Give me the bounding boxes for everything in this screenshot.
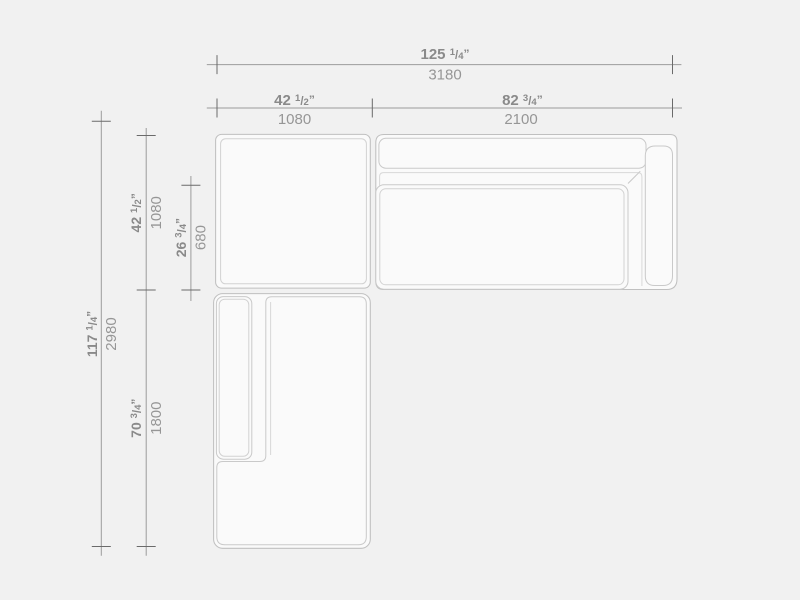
svg-text:3180: 3180 [428, 67, 461, 84]
svg-text:42 1/2”: 42 1/2” [274, 92, 315, 109]
svg-text:1080: 1080 [278, 111, 311, 128]
svg-text:82 3/4”: 82 3/4” [502, 92, 543, 109]
svg-text:1800: 1800 [148, 402, 165, 435]
svg-text:117 1/4”: 117 1/4” [84, 311, 100, 357]
svg-text:680: 680 [193, 225, 210, 250]
svg-text:1080: 1080 [148, 196, 165, 229]
svg-text:2100: 2100 [504, 111, 537, 128]
svg-text:2980: 2980 [103, 317, 120, 350]
